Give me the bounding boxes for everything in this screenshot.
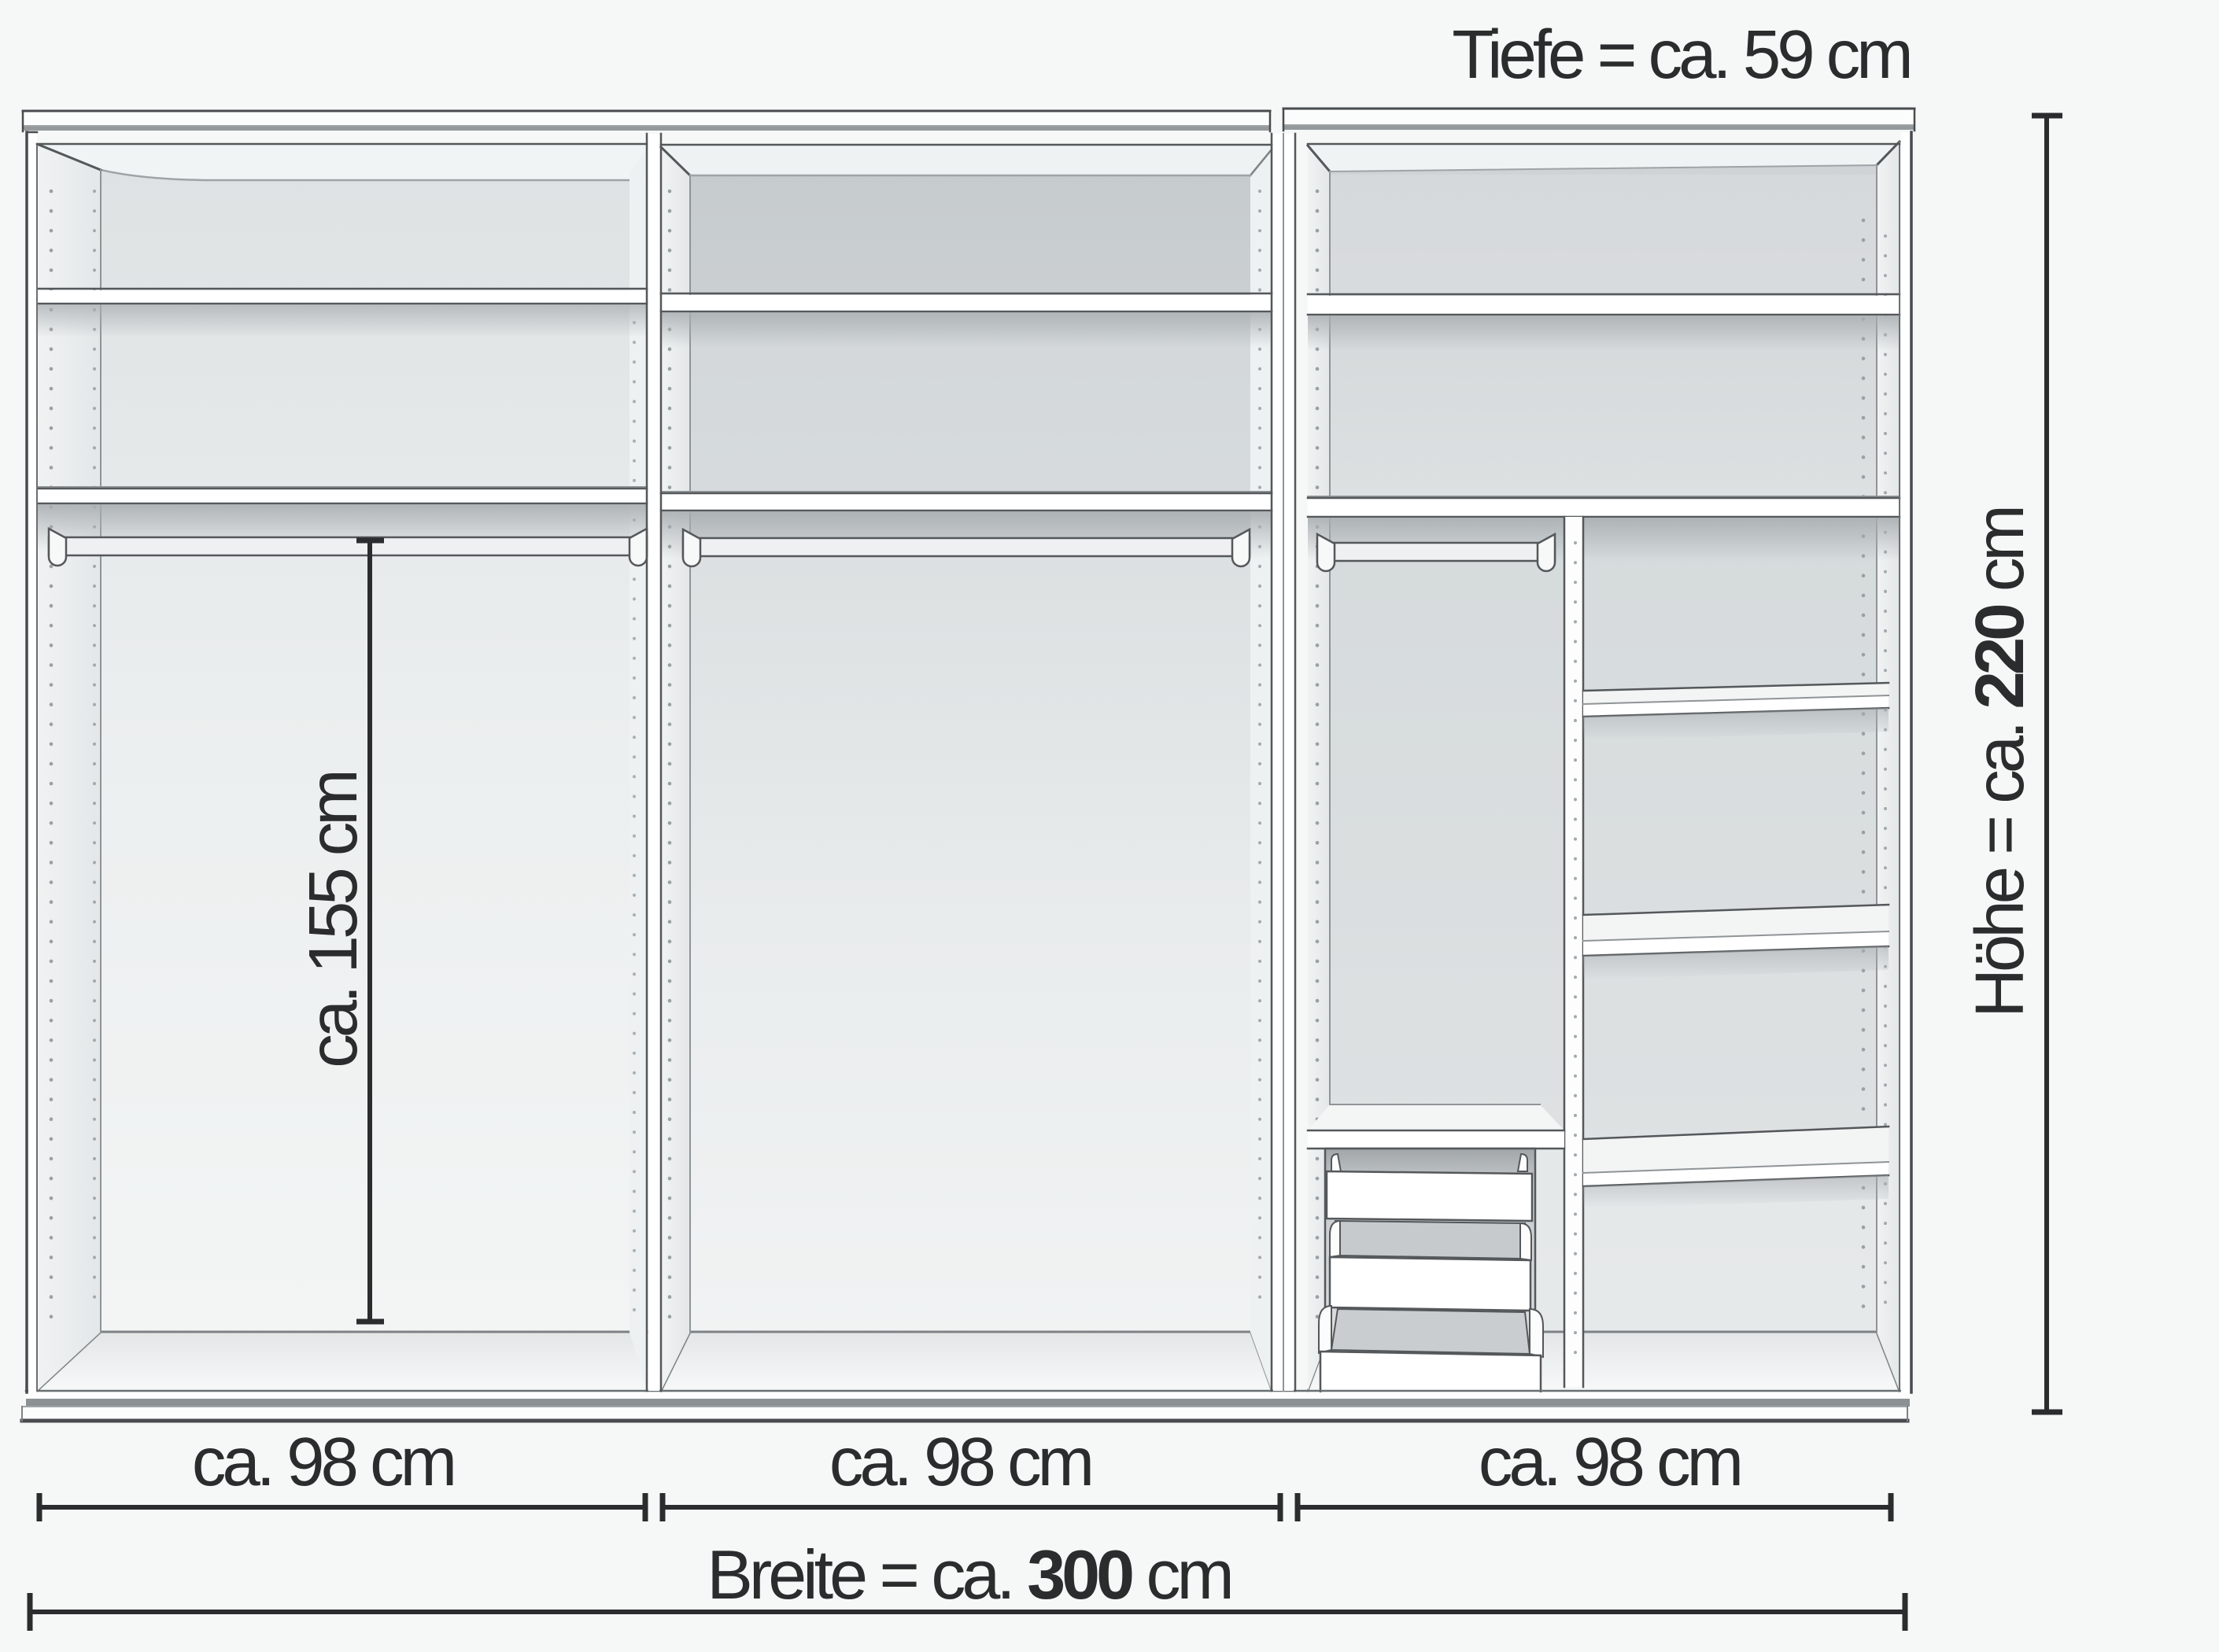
svg-text:ca. 155 cm: ca. 155 cm <box>295 773 371 1068</box>
svg-text:Tiefe = ca. 59 cm: Tiefe = ca. 59 cm <box>1452 17 1909 93</box>
svg-text:Breite = ca. 300 cm: Breite = ca. 300 cm <box>707 1536 1231 1613</box>
svg-text:Höhe = ca. 220 cm: Höhe = ca. 220 cm <box>1962 508 2038 1018</box>
svg-text:ca. 98 cm: ca. 98 cm <box>192 1424 453 1500</box>
svg-text:ca. 98 cm: ca. 98 cm <box>829 1424 1091 1500</box>
svg-text:ca. 98 cm: ca. 98 cm <box>1479 1424 1740 1500</box>
